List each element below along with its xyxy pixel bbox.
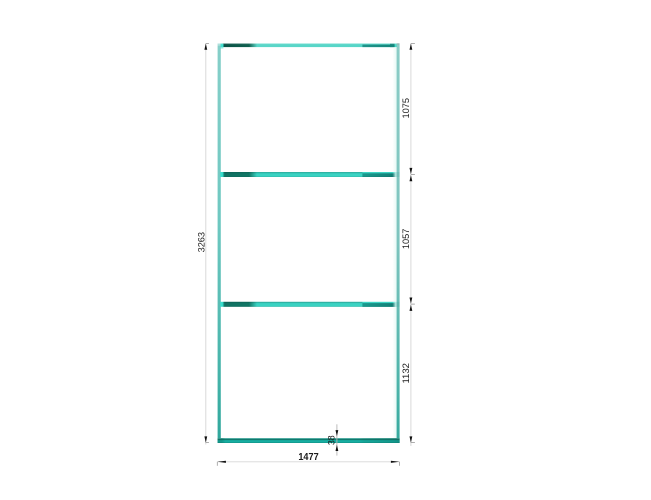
svg-text:1477: 1477	[298, 452, 319, 463]
svg-text:1132: 1132	[401, 363, 411, 384]
svg-text:3263: 3263	[197, 232, 207, 252]
svg-text:1057: 1057	[401, 229, 411, 250]
svg-text:1075: 1075	[401, 98, 411, 119]
svg-text:38: 38	[327, 435, 337, 445]
